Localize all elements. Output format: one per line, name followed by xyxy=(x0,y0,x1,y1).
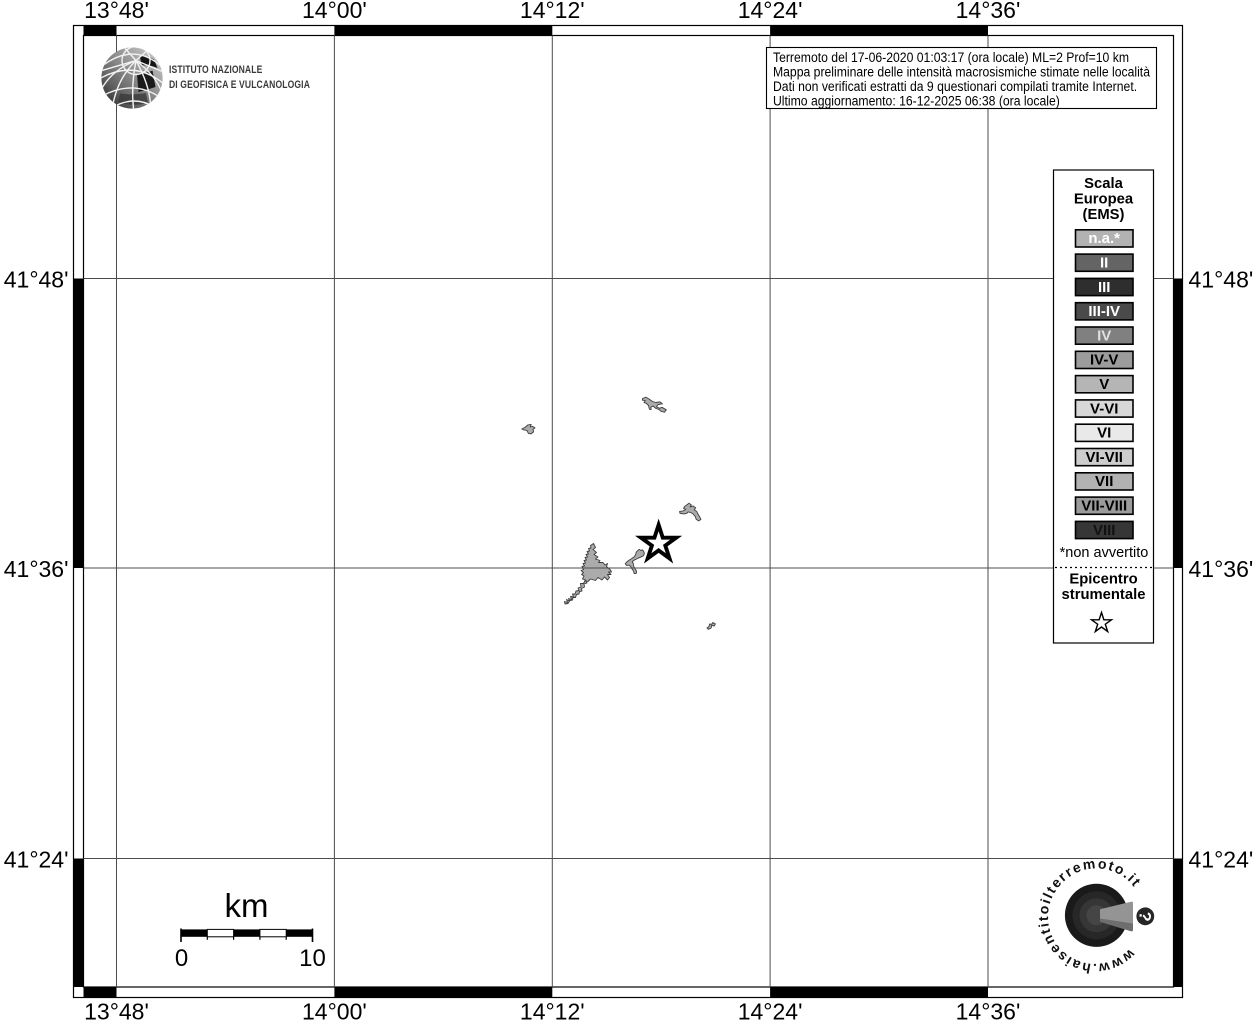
svg-text:14°12': 14°12' xyxy=(520,0,585,23)
svg-text:41°24': 41°24' xyxy=(1189,846,1254,872)
svg-text:IV: IV xyxy=(1097,327,1111,344)
svg-text:0: 0 xyxy=(175,945,188,972)
svg-text:41°24': 41°24' xyxy=(4,846,69,872)
svg-text:III-IV: III-IV xyxy=(1088,303,1120,320)
svg-text:14°24': 14°24' xyxy=(738,999,803,1024)
svg-text:13°48': 13°48' xyxy=(84,999,149,1024)
svg-text:(EMS): (EMS) xyxy=(1083,207,1125,223)
svg-text:14°00': 14°00' xyxy=(302,999,367,1024)
svg-text:10: 10 xyxy=(299,945,326,972)
svg-text:14°00': 14°00' xyxy=(302,0,367,23)
svg-text:V: V xyxy=(1099,376,1109,393)
svg-text:14°36': 14°36' xyxy=(956,999,1021,1024)
svg-text:14°12': 14°12' xyxy=(520,999,585,1024)
svg-text:DI GEOFISICA E VULCANOLOGIA: DI GEOFISICA E VULCANOLOGIA xyxy=(169,79,310,91)
svg-text:ISTITUTO NAZIONALE: ISTITUTO NAZIONALE xyxy=(169,64,263,76)
svg-text:V-VI: V-VI xyxy=(1090,400,1118,417)
svg-text:Ultimo aggiornamento: 16-12-20: Ultimo aggiornamento: 16-12-2025 06:38 (… xyxy=(773,93,1060,109)
svg-text:VI: VI xyxy=(1097,425,1111,442)
svg-text:IV-V: IV-V xyxy=(1090,352,1118,369)
svg-text:13°48': 13°48' xyxy=(84,0,149,23)
svg-text:km: km xyxy=(225,887,269,924)
svg-text:VI-VII: VI-VII xyxy=(1085,449,1123,466)
svg-text:*non avvertito: *non avvertito xyxy=(1060,545,1149,561)
svg-text:Scala: Scala xyxy=(1084,176,1123,192)
svg-text:41°48': 41°48' xyxy=(1189,266,1254,292)
svg-text:?: ? xyxy=(1135,910,1154,922)
svg-text:14°24': 14°24' xyxy=(738,0,803,23)
svg-text:Epicentro: Epicentro xyxy=(1069,572,1137,588)
svg-text:41°48': 41°48' xyxy=(4,266,69,292)
svg-text:III: III xyxy=(1098,279,1111,296)
svg-text:VII: VII xyxy=(1095,473,1113,490)
svg-text:strumentale: strumentale xyxy=(1062,587,1146,603)
svg-text:II: II xyxy=(1100,255,1108,272)
svg-text:41°36': 41°36' xyxy=(4,556,69,582)
svg-text:Europea: Europea xyxy=(1074,192,1134,208)
svg-text:VIII: VIII xyxy=(1093,522,1116,539)
svg-text:41°36': 41°36' xyxy=(1189,556,1254,582)
svg-text:n.a.*: n.a.* xyxy=(1088,230,1120,247)
svg-text:14°36': 14°36' xyxy=(956,0,1021,23)
svg-text:VII-VIII: VII-VIII xyxy=(1081,498,1127,515)
